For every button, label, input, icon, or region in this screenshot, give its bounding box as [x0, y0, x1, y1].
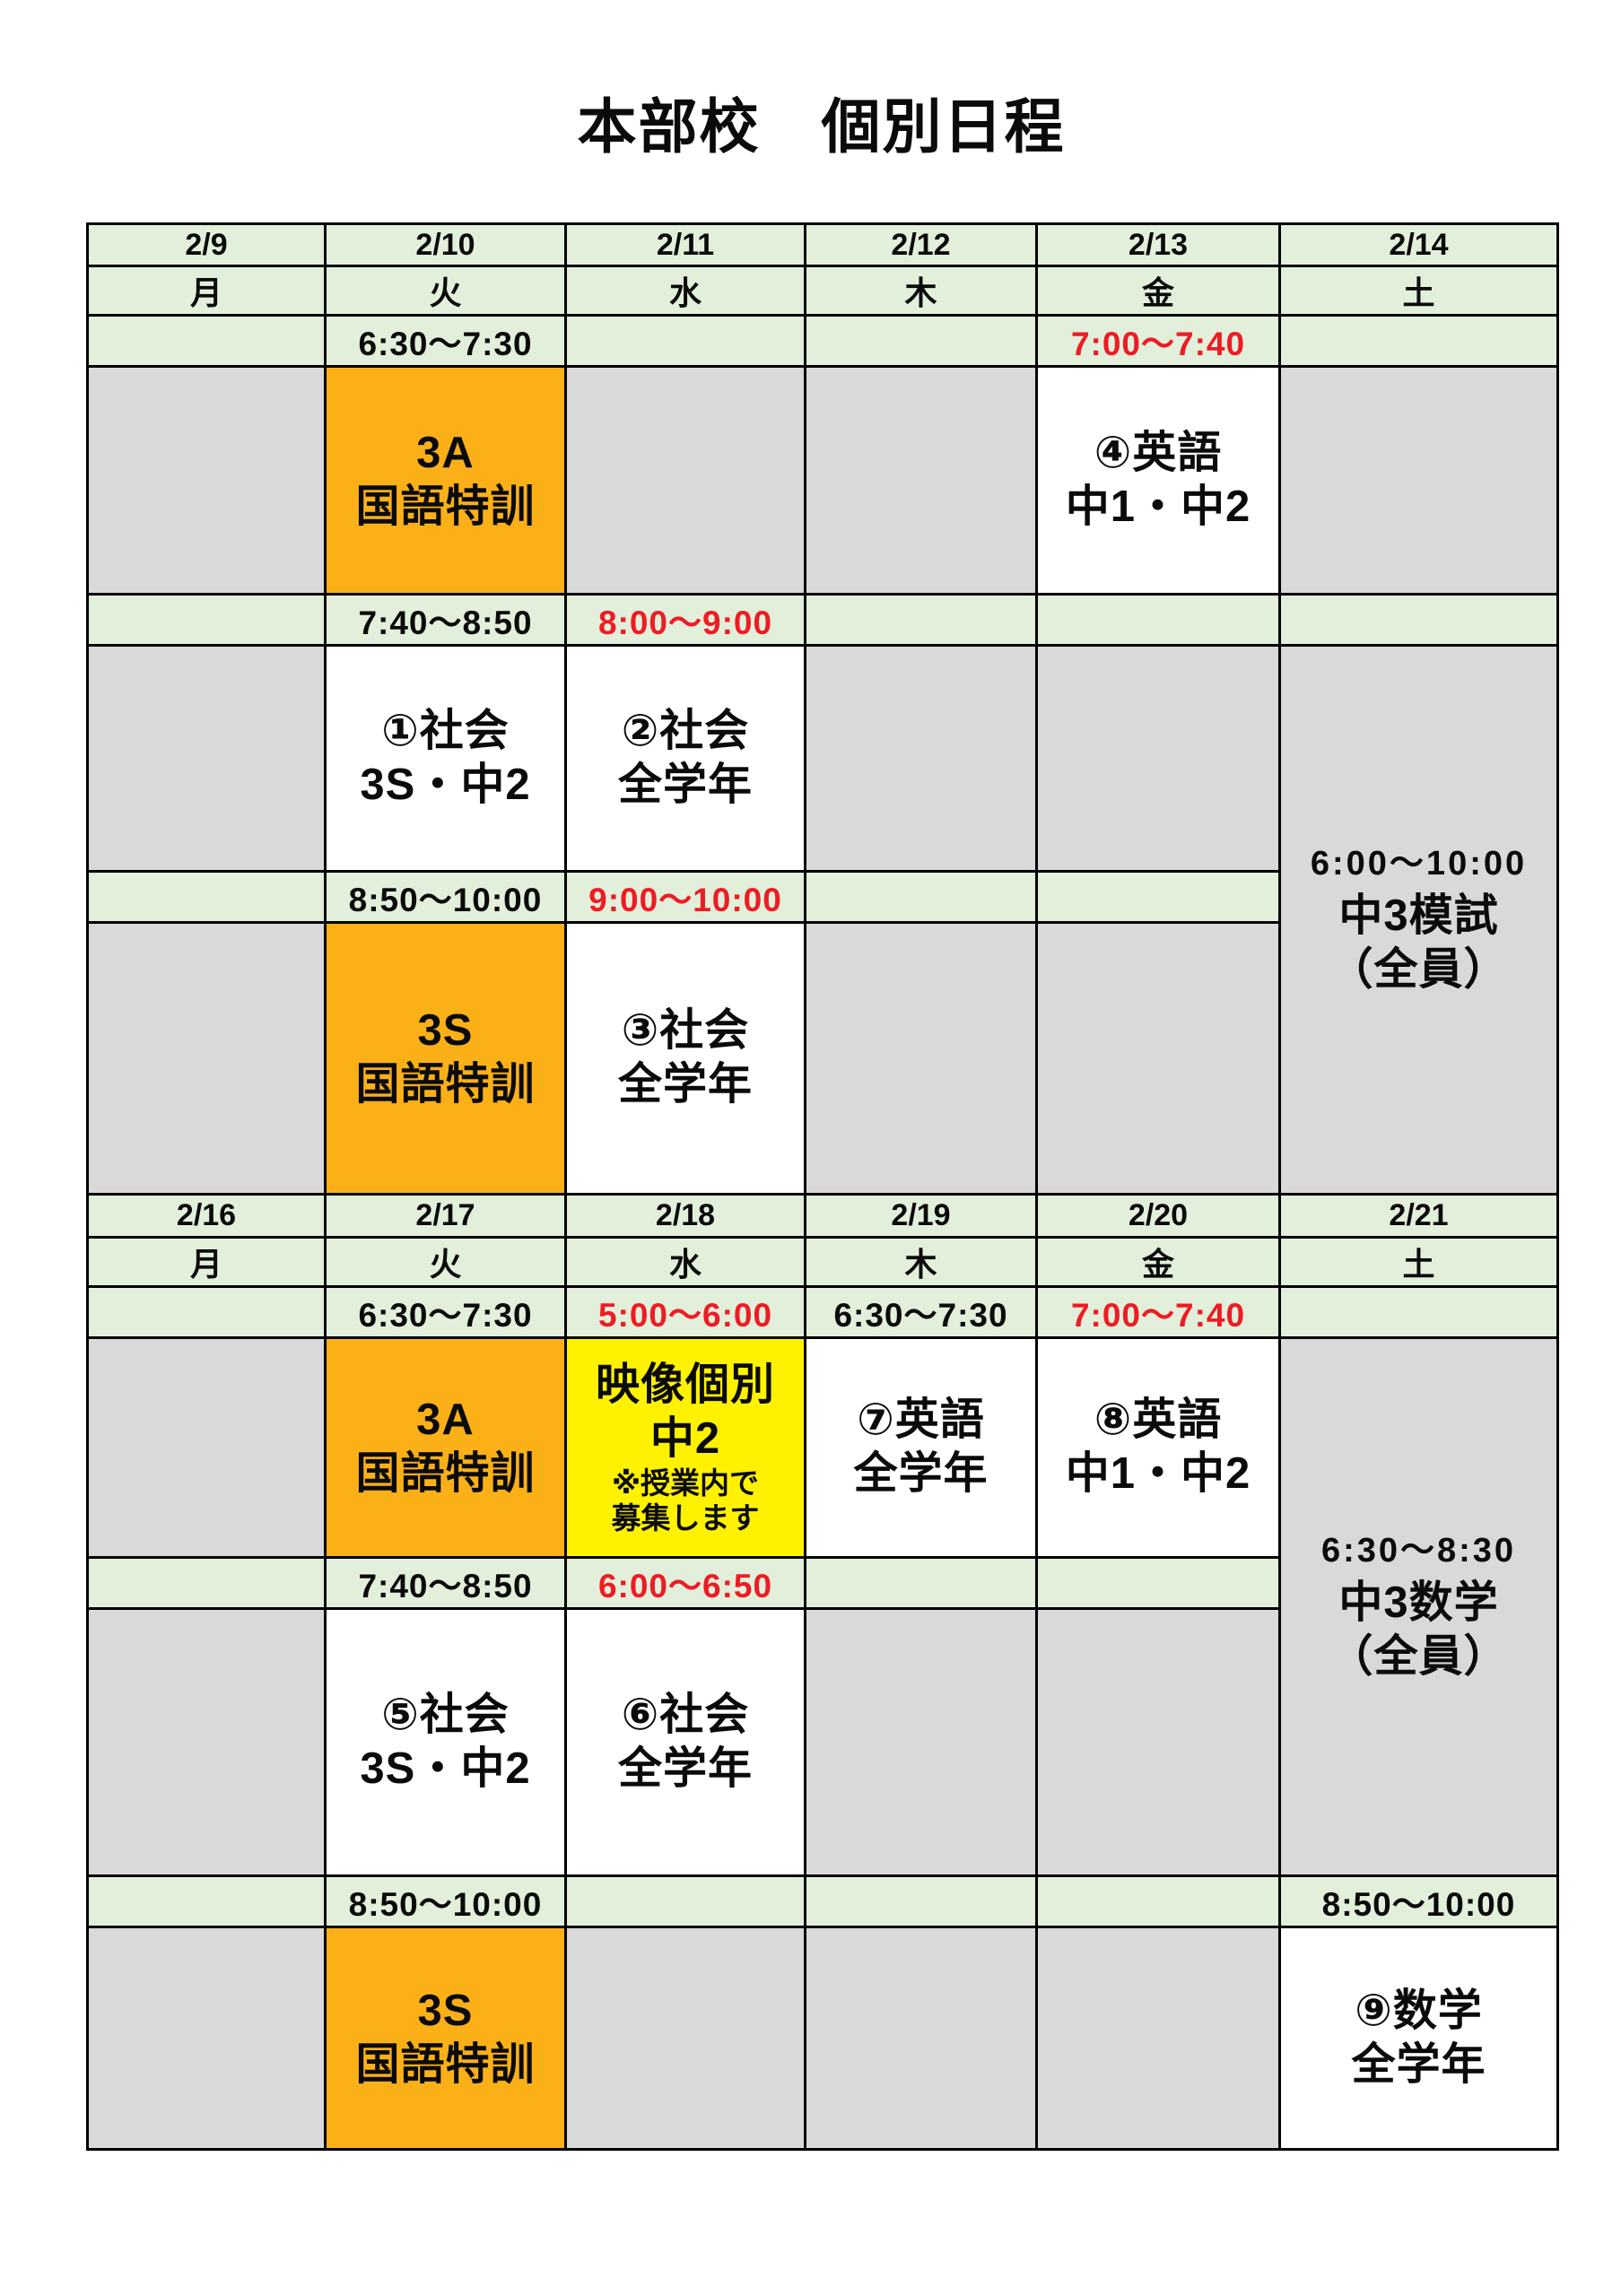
cell-line: ④英語 [1038, 427, 1278, 481]
date-cell: 2/14 [1280, 224, 1558, 266]
empty-cell [88, 646, 326, 872]
date-cell: 2/20 [1037, 1195, 1280, 1238]
class-3a-kokugo-tokkun-week2: 3A国語特訓 [326, 1338, 566, 1558]
cell-line: （全員） [1281, 1631, 1556, 1684]
cell-line: 3A [327, 1394, 564, 1448]
date-cell: 2/19 [806, 1195, 1037, 1238]
time-slot-cell [88, 1558, 326, 1609]
cell-line: 全学年 [567, 1058, 804, 1112]
date-cell: 2/13 [1037, 224, 1280, 266]
time-slot-cell [1280, 1287, 1558, 1338]
time-slot-cell: 6:30～7:30 [806, 1287, 1037, 1338]
time-slot-cell [1037, 595, 1280, 646]
time-slot-cell [1037, 872, 1280, 923]
row-content-4: 3A国語特訓④英語中1・中2 [88, 367, 1558, 595]
date-cell: 2/10 [326, 224, 566, 266]
empty-cell [566, 1927, 806, 2150]
date-cell: 2/12 [806, 224, 1037, 266]
cell-line: 6:30～8:30 [1281, 1529, 1556, 1573]
cell-line: ⑥社会 [567, 1689, 804, 1743]
time-slot-cell: 8:00～9:00 [566, 595, 806, 646]
class-6-shakai: ⑥社会全学年 [566, 1609, 806, 1876]
class-4-eigo: ④英語中1・中2 [1037, 367, 1280, 595]
class-5-shakai: ⑤社会3S・中2 [326, 1609, 566, 1876]
cell-line: 中2 [567, 1413, 804, 1466]
schedule-body: 2/92/102/112/122/132/14月火水木金土6:30～7:307:… [88, 224, 1558, 2150]
cell-line: 国語特訓 [327, 1058, 564, 1112]
date-cell: 2/17 [326, 1195, 566, 1238]
class-eizo-kobetsu-chu2: 映像個別中2※授業内で募集します [566, 1338, 806, 1558]
time-slot-cell: 6:30～7:30 [326, 1287, 566, 1338]
empty-cell [88, 923, 326, 1195]
cell-line: ⑧英語 [1038, 1394, 1278, 1448]
cell-line: 国語特訓 [327, 1448, 564, 1501]
time-slot-cell: 5:00～6:00 [566, 1287, 806, 1338]
date-cell: 2/16 [88, 1195, 326, 1238]
cell-line: 3S・中2 [327, 759, 564, 813]
cell-line: 3S [327, 1985, 564, 2039]
time-slot-cell [806, 1876, 1037, 1927]
cell-line: 全学年 [806, 1448, 1035, 1501]
row-content-16: 3S国語特訓⑨数学全学年 [88, 1927, 1558, 2150]
cell-line: 募集します [567, 1501, 804, 1536]
time-slot-cell: 7:00～7:40 [1037, 316, 1280, 367]
day-cell: 土 [1280, 266, 1558, 316]
time-slot-cell [1280, 595, 1558, 646]
time-slot-cell [806, 595, 1037, 646]
cell-line: 中1・中2 [1038, 1448, 1278, 1501]
class-7-eigo: ⑦英語全学年 [806, 1338, 1037, 1558]
row-time-15: 8:50～10:008:50～10:00 [88, 1876, 1558, 1927]
cell-line: ⑦英語 [806, 1394, 1035, 1448]
time-slot-cell [88, 316, 326, 367]
cell-line: （全員） [1281, 944, 1556, 997]
cell-line: ②社会 [567, 705, 804, 759]
cell-line: ⑤社会 [327, 1689, 564, 1743]
day-cell: 木 [806, 1238, 1037, 1287]
empty-cell [806, 1927, 1037, 2150]
time-slot-cell [88, 1876, 326, 1927]
time-slot-cell: 6:30～7:30 [326, 316, 566, 367]
empty-cell [1037, 1609, 1280, 1876]
cell-line: 6:00～10:00 [1281, 842, 1556, 886]
class-3s-kokugo-tokkun-week1: 3S国語特訓 [326, 923, 566, 1195]
empty-cell [806, 646, 1037, 872]
time-slot-cell: 8:50～10:00 [1280, 1876, 1558, 1927]
row-days-10: 月火水木金土 [88, 1238, 1558, 1287]
cell-line: ⑨数学 [1281, 1985, 1556, 2039]
time-slot-cell [1037, 1558, 1280, 1609]
date-cell: 2/18 [566, 1195, 806, 1238]
day-cell: 土 [1280, 1238, 1558, 1287]
day-cell: 月 [88, 1238, 326, 1287]
class-3s-kokugo-tokkun-week2: 3S国語特訓 [326, 1927, 566, 2150]
time-slot-cell: 7:40～8:50 [326, 1558, 566, 1609]
empty-cell [806, 923, 1037, 1195]
row-dates-9: 2/162/172/182/192/202/21 [88, 1195, 1558, 1238]
time-slot-cell [566, 316, 806, 367]
page-title: 本部校 個別日程 [86, 79, 1556, 165]
time-slot-cell [806, 316, 1037, 367]
time-slot-cell: 6:00～6:50 [566, 1558, 806, 1609]
time-slot-cell [88, 872, 326, 923]
time-slot-cell [88, 595, 326, 646]
time-slot-cell: 7:40～8:50 [326, 595, 566, 646]
class-9-sugaku: ⑨数学全学年 [1280, 1927, 1558, 2150]
cell-line: 映像個別 [567, 1359, 804, 1413]
date-cell: 2/21 [1280, 1195, 1558, 1238]
time-slot-cell: 7:00～7:40 [1037, 1287, 1280, 1338]
cell-line: ※授業内で [567, 1466, 804, 1501]
empty-cell [806, 1609, 1037, 1876]
cell-line: ①社会 [327, 705, 564, 759]
day-cell: 月 [88, 266, 326, 316]
empty-cell [88, 1338, 326, 1558]
row-content-6: ①社会3S・中2②社会全学年6:00～10:00中3模試（全員） [88, 646, 1558, 872]
day-cell: 火 [326, 266, 566, 316]
day-cell: 木 [806, 266, 1037, 316]
empty-cell [88, 1609, 326, 1876]
empty-cell [1280, 367, 1558, 595]
schedule-table: 2/92/102/112/122/132/14月火水木金土6:30～7:307:… [86, 222, 1559, 2151]
empty-cell [88, 1927, 326, 2150]
day-cell: 水 [566, 266, 806, 316]
class-3a-kokugo-tokkun-week1: 3A国語特訓 [326, 367, 566, 595]
empty-cell [1037, 1927, 1280, 2150]
date-cell: 2/11 [566, 224, 806, 266]
cell-line: 中3数学 [1281, 1577, 1556, 1631]
cell-line: 全学年 [1281, 2039, 1556, 2092]
time-slot-cell [1280, 316, 1558, 367]
cell-line: 3A [327, 427, 564, 481]
row-days-2: 月火水木金土 [88, 266, 1558, 316]
schedule-page: { "page_title": "本部校 個別日程", "colors": { … [0, 0, 1621, 2296]
time-slot-cell: 8:50～10:00 [326, 872, 566, 923]
class-2-shakai: ②社会全学年 [566, 646, 806, 872]
time-slot-cell [566, 1876, 806, 1927]
empty-cell [566, 367, 806, 595]
row-time-11: 6:30～7:305:00～6:006:30～7:307:00～7:40 [88, 1287, 1558, 1338]
time-slot-cell [806, 872, 1037, 923]
cell-line: 全学年 [567, 759, 804, 813]
row-dates-1: 2/92/102/112/122/132/14 [88, 224, 1558, 266]
row-time-5: 7:40～8:508:00～9:00 [88, 595, 1558, 646]
cell-line: 全学年 [567, 1743, 804, 1796]
day-cell: 水 [566, 1238, 806, 1287]
cell-line: 国語特訓 [327, 481, 564, 535]
cell-line: ③社会 [567, 1004, 804, 1058]
cell-line: 中3模試 [1281, 890, 1556, 944]
chu3-sugaku-zenin: 6:30～8:30中3数学（全員） [1280, 1338, 1558, 1876]
time-slot-cell [806, 1558, 1037, 1609]
class-3-shakai: ③社会全学年 [566, 923, 806, 1195]
row-content-12: 3A国語特訓映像個別中2※授業内で募集します⑦英語全学年⑧英語中1・中26:30… [88, 1338, 1558, 1558]
time-slot-cell [88, 1287, 326, 1338]
time-slot-cell: 8:50～10:00 [326, 1876, 566, 1927]
empty-cell [1037, 646, 1280, 872]
empty-cell [88, 367, 326, 595]
class-1-shakai: ①社会3S・中2 [326, 646, 566, 872]
cell-line: 3S・中2 [327, 1743, 564, 1796]
class-8-eigo: ⑧英語中1・中2 [1037, 1338, 1280, 1558]
cell-line: 国語特訓 [327, 2039, 564, 2092]
row-time-3: 6:30～7:307:00～7:40 [88, 316, 1558, 367]
mock-exam-chu3-moshi: 6:00～10:00中3模試（全員） [1280, 646, 1558, 1195]
time-slot-cell: 9:00～10:00 [566, 872, 806, 923]
day-cell: 火 [326, 1238, 566, 1287]
empty-cell [806, 367, 1037, 595]
day-cell: 金 [1037, 266, 1280, 316]
date-cell: 2/9 [88, 224, 326, 266]
day-cell: 金 [1037, 1238, 1280, 1287]
empty-cell [1037, 923, 1280, 1195]
time-slot-cell [1037, 1876, 1280, 1927]
cell-line: 3S [327, 1004, 564, 1058]
cell-line: 中1・中2 [1038, 481, 1278, 535]
